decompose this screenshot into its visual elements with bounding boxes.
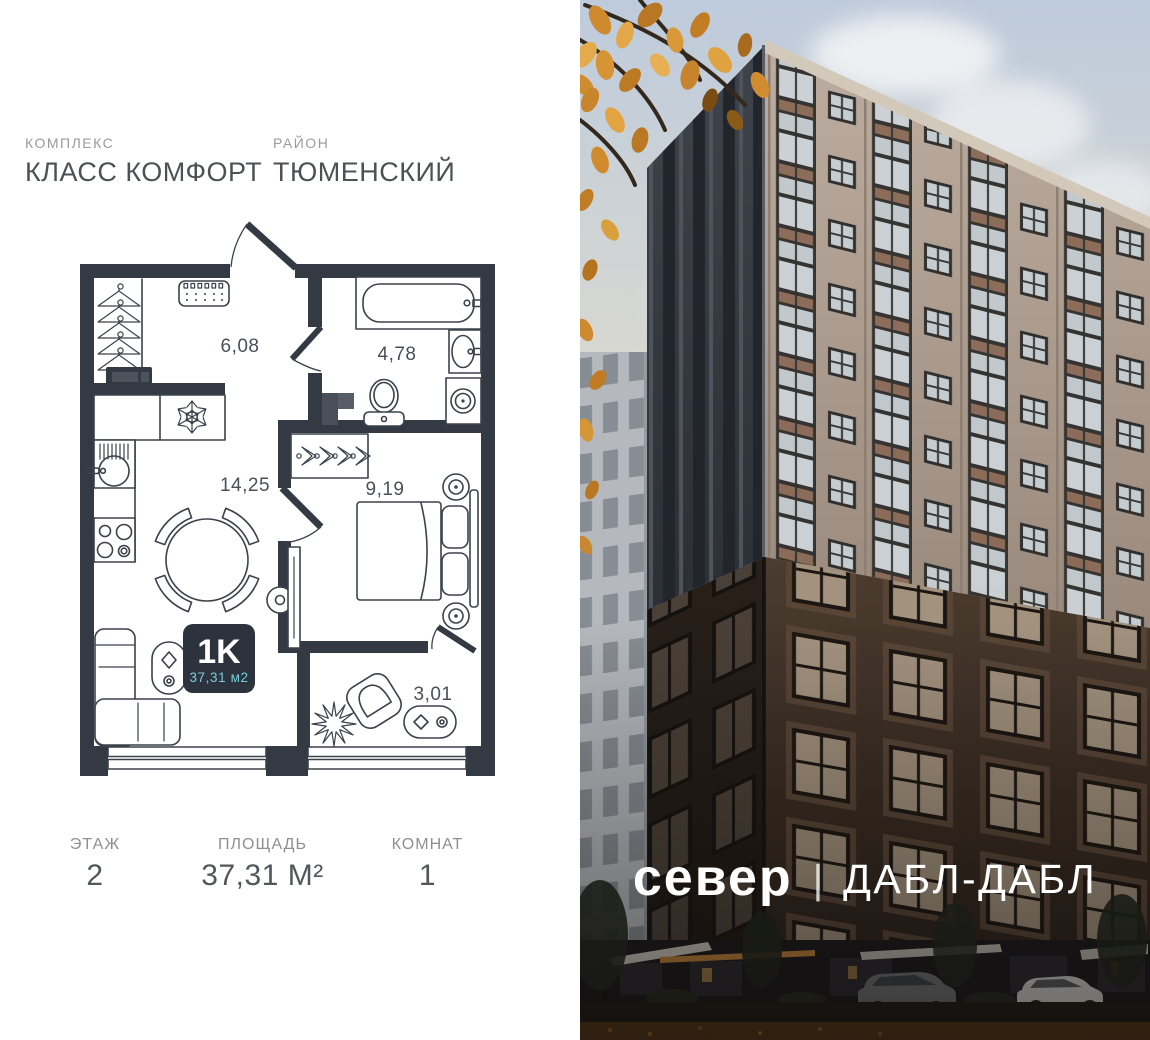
developer-logo: север | ДАБЛ-ДАБЛ (580, 852, 1150, 904)
kitchen-sink-icon (86, 440, 135, 488)
area-stat: ПЛОЩАДЬ 37,31 М² (185, 836, 340, 893)
floorplan-panel: КОМПЛЕКС КЛАСС КОМФОРТ РАЙОН ТЮМЕНСКИЙ (0, 0, 580, 1040)
dining-set (152, 505, 263, 616)
room-area-balcony: 3,01 (414, 684, 453, 705)
shaft (322, 393, 338, 425)
stove-icon (94, 518, 135, 562)
listing-card[interactable]: КОМПЛЕКС КЛАСС КОМФОРТ РАЙОН ТЮМЕНСКИЙ (0, 0, 1150, 1040)
hall-console (106, 367, 152, 387)
balcony-table (404, 706, 456, 738)
dusk-overlay (580, 620, 1150, 1040)
rooms-label: КОМНАТ (355, 836, 500, 854)
toilet-icon (364, 380, 404, 427)
floor-value: 2 (40, 859, 150, 893)
apartment-badge: 1K 37,31 м2 (183, 624, 255, 693)
bedroom-wardrobe (291, 434, 370, 478)
bathroom-door (292, 327, 321, 371)
room-area-bedroom: 9,19 (366, 479, 405, 500)
floor-label: ЭТАЖ (40, 836, 150, 854)
area-value: 37,31 М² (185, 859, 340, 893)
room-area-hallway: 6,08 (221, 336, 260, 357)
bedroom-door (282, 488, 321, 543)
room-area-kitchen-living: 14,25 (220, 475, 270, 496)
hallway-closet (98, 279, 142, 370)
rooms-value: 1 (355, 859, 500, 893)
logo-project: ДАБЛ-ДАБЛ (843, 859, 1097, 900)
entry-bench (179, 281, 229, 306)
fridge-icon (176, 401, 209, 433)
room-area-bathroom: 4,78 (378, 344, 417, 365)
area-label: ПЛОЩАДЬ (185, 836, 340, 854)
badge-type: 1K (197, 633, 241, 671)
rooms-stat: КОМНАТ 1 (355, 836, 500, 893)
badge-area: 37,31 м2 (189, 670, 248, 685)
building-photo: север | ДАБЛ-ДАБЛ (580, 0, 1150, 1040)
logo-separator: | (813, 860, 823, 900)
entrance-door (231, 224, 296, 268)
side-table-icon (152, 642, 186, 694)
shaft-box (338, 393, 354, 409)
bath-sink-icon (449, 330, 481, 373)
logo-brand: север (633, 852, 793, 904)
washing-machine-icon (446, 378, 481, 424)
balcony-door (432, 627, 475, 651)
floor-stat: ЭТАЖ 2 (40, 836, 150, 893)
balcony-plant (312, 702, 356, 746)
bathtub-icon (356, 277, 481, 329)
